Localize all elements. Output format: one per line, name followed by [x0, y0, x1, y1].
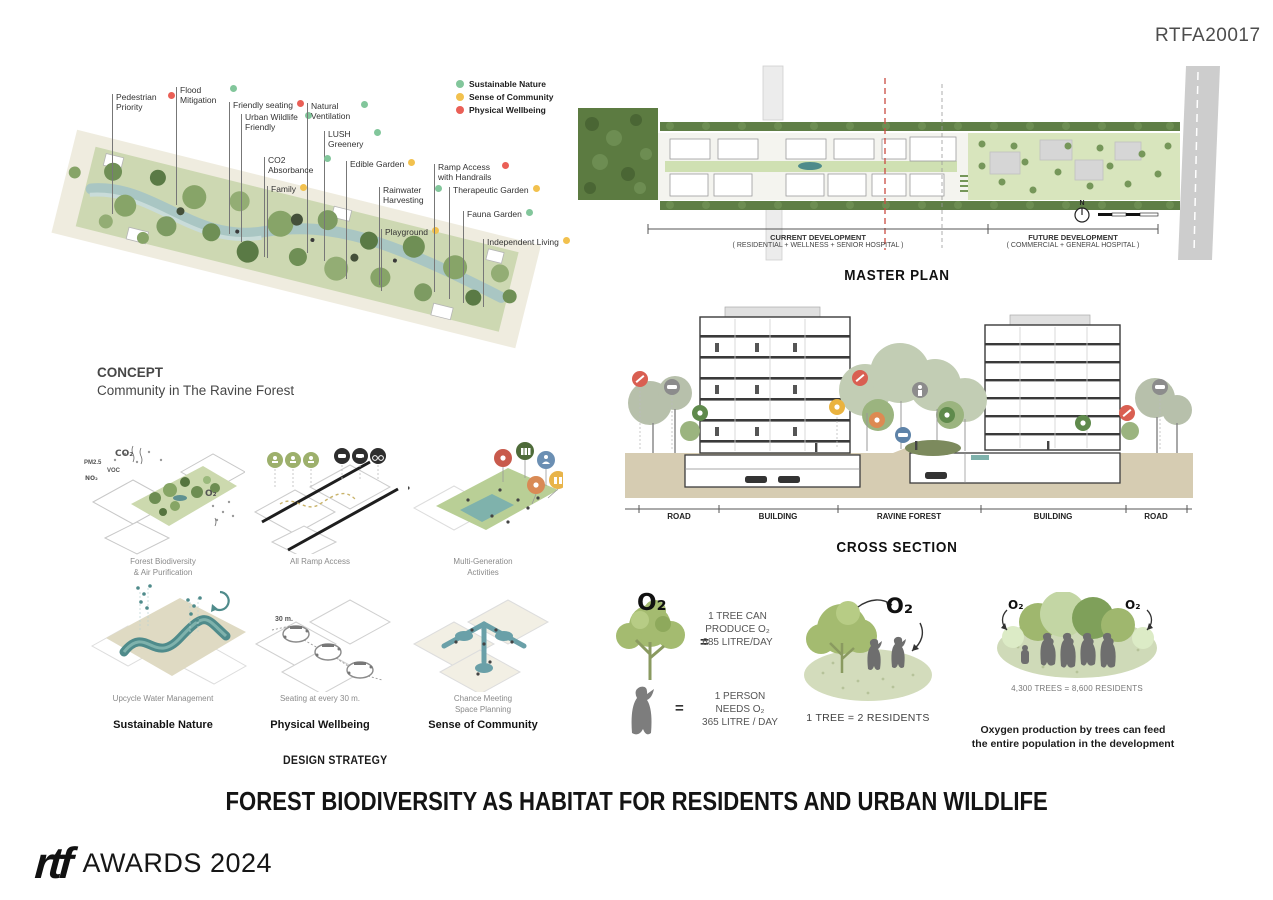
callout-natural-ventilation: Natural Ventilation: [307, 101, 368, 121]
callout-rainwater-harvesting: Rainwater Harvesting: [379, 185, 442, 205]
callout-label: Fauna Garden: [467, 209, 522, 219]
current-development-sublabel: ( RESIDENTIAL + WELLNESS + SENIOR HOSPIT…: [733, 242, 904, 249]
cross-section-title: CROSS SECTION: [830, 539, 965, 556]
o2-label-right-1: O₂: [1008, 598, 1023, 612]
legend-item: Sense of Community: [456, 92, 554, 102]
segment-road-right: ROAD: [1144, 512, 1168, 521]
callout-pedestrian-priority: Pedestrian Priority: [112, 92, 175, 112]
diagram-water-management: [88, 580, 248, 692]
caption-seating: Seating at every 30 m.: [245, 694, 395, 705]
category-dot: [300, 184, 307, 191]
recycle-icon: [211, 592, 229, 612]
annotation-o2: O₂: [205, 489, 217, 499]
category-dot: [361, 101, 368, 108]
annotation-pm25: PM2.5: [84, 460, 101, 466]
footer: rtf AWARDS 2024: [35, 846, 272, 881]
callout-flood-mitigation: Flood Mitigation: [176, 85, 237, 105]
future-development-label: FUTURE DEVELOPMENT: [1028, 233, 1118, 242]
concept-title-block: CONCEPT Community in The Ravine Forest: [97, 364, 294, 399]
callout-label: Edible Garden: [350, 159, 404, 169]
segment-building-left: BUILDING: [759, 512, 798, 521]
column-physical-wellbeing: Physical Wellbeing: [240, 719, 400, 731]
callout-urban-wildlife: Urban Wildlife Friendly: [241, 112, 312, 132]
segment-building-right: BUILDING: [1034, 512, 1073, 521]
category-dot: [374, 129, 381, 136]
board-main-title: FOREST BIODIVERSITY AS HABITAT FOR RESID…: [0, 786, 1273, 817]
callout-co2-absorbance: CO2 Absorbance: [264, 155, 331, 175]
callout-label: Pedestrian Priority: [116, 92, 164, 112]
category-dot: [502, 162, 509, 169]
oxygen-conclusion: Oxygen production by trees can feed the …: [968, 723, 1178, 751]
equation-population: 4,300 TREES = 8,600 RESIDENTS: [993, 684, 1161, 693]
legend-item: Physical Wellbeing: [456, 105, 554, 115]
caption-chance-meeting: Chance Meeting Space Planning: [408, 694, 558, 716]
callout-label: Playground: [385, 227, 428, 237]
presentation-board: RTFA20017: [0, 0, 1273, 900]
concept-subtitle: Community in The Ravine Forest: [97, 383, 294, 398]
svg-text:N: N: [1079, 200, 1084, 207]
cross-section-drawing: [615, 295, 1200, 503]
annotation-co2: CO₂: [115, 449, 133, 459]
legend-dot-yellow: [456, 93, 464, 101]
callout-fauna-garden: Fauna Garden: [463, 209, 533, 219]
callout-label: Independent Living: [487, 237, 559, 247]
callout-family: Family: [267, 184, 307, 194]
category-dot: [435, 185, 442, 192]
category-dot: [168, 92, 175, 99]
o2-label-tree: O₂: [637, 590, 667, 616]
master-plan-title: MASTER PLAN: [838, 267, 955, 284]
callout-label: CO2 Absorbance: [268, 155, 320, 175]
category-dot: [324, 155, 331, 162]
callout-independent-living: Independent Living: [483, 237, 570, 247]
future-development-sublabel: ( COMMERCIAL + GENERAL HOSPITAL ): [1007, 242, 1140, 249]
diagram-forest-biodiversity: [85, 440, 245, 555]
diagram-seating: [252, 584, 402, 692]
callout-label: Friendly seating: [233, 100, 293, 110]
awards-text: AWARDS 2024: [82, 848, 272, 879]
column-sense-of-community: Sense of Community: [403, 719, 563, 731]
o2-label-right-2: O₂: [1125, 598, 1140, 612]
callout-playground: Playground: [381, 227, 439, 237]
legend: Sustainable Nature Sense of Community Ph…: [456, 79, 554, 115]
callout-ramp-access: Ramp Access with Handrails: [434, 162, 509, 182]
caption-water-management: Upcycle Water Management: [88, 694, 238, 705]
caption-forest-biodiversity: Forest Biodiversity & Air Purification: [93, 557, 233, 579]
category-dot: [533, 185, 540, 192]
equation-one-tree: 1 TREE = 2 RESIDENTS: [798, 712, 938, 724]
category-dot: [297, 100, 304, 107]
legend-dot-green: [456, 80, 464, 88]
legend-dot-red: [456, 106, 464, 114]
legend-item: Sustainable Nature: [456, 79, 554, 89]
callout-label: Flood Mitigation: [180, 85, 226, 105]
callout-lush-greenery: LUSH Greenery: [324, 129, 381, 149]
tree-fact: 1 TREE CAN PRODUCE O₂ 685 LITRE/DAY: [680, 610, 795, 650]
segment-road-left: ROAD: [667, 512, 691, 521]
caption-ramp-access: All Ramp Access: [250, 557, 390, 568]
person-icon: [622, 685, 658, 737]
rtf-logo: rtf: [34, 846, 71, 881]
legend-label: Physical Wellbeing: [469, 105, 546, 115]
callout-label: Therapeutic Garden: [453, 185, 529, 195]
category-dot: [408, 159, 415, 166]
callout-label: Ramp Access with Handrails: [438, 162, 498, 182]
callout-label: Urban Wildlife Friendly: [245, 112, 301, 132]
callout-therapeutic-garden: Therapeutic Garden: [449, 185, 540, 195]
column-sustainable-nature: Sustainable Nature: [83, 719, 243, 731]
callout-label: Family: [271, 184, 296, 194]
concept-title: CONCEPT: [97, 364, 294, 382]
category-dot: [230, 85, 237, 92]
diagram-all-ramp-access: [250, 442, 400, 554]
diagram-chance-meeting: [410, 584, 560, 692]
legend-label: Sense of Community: [469, 92, 554, 102]
callout-label: Natural Ventilation: [311, 101, 357, 121]
design-strategy-title: DESIGN STRATEGY: [283, 755, 397, 767]
category-dot: [563, 237, 570, 244]
person-fact: 1 PERSON NEEDS O₂ 365 LITRE / DAY: [680, 690, 800, 730]
annotation-voc: VOC: [107, 468, 120, 474]
master-plan-bracket-lines: [570, 222, 1230, 240]
legend-label: Sustainable Nature: [469, 79, 546, 89]
diagram-multi-generation: [408, 438, 563, 556]
category-dot: [526, 209, 533, 216]
o2-label-middle: O₂: [886, 594, 913, 618]
scale-bar: [1098, 213, 1158, 216]
callout-label: LUSH Greenery: [328, 129, 370, 149]
caption-multi-generation: Multi-Generation Activities: [413, 557, 553, 579]
callout-label: Rainwater Harvesting: [383, 185, 431, 205]
segment-ravine-forest: RAVINE FOREST: [877, 512, 941, 521]
annotation-30m: 30 m.: [275, 616, 293, 623]
current-development-label: CURRENT DEVELOPMENT: [770, 233, 866, 242]
callout-edible-garden: Edible Garden: [346, 159, 415, 169]
annotation-no2: NO₂: [85, 475, 98, 482]
one-tree-two-residents-illustration: [798, 593, 938, 708]
board-code: RTFA20017: [1155, 25, 1261, 47]
callout-friendly-seating: Friendly seating: [229, 100, 304, 110]
